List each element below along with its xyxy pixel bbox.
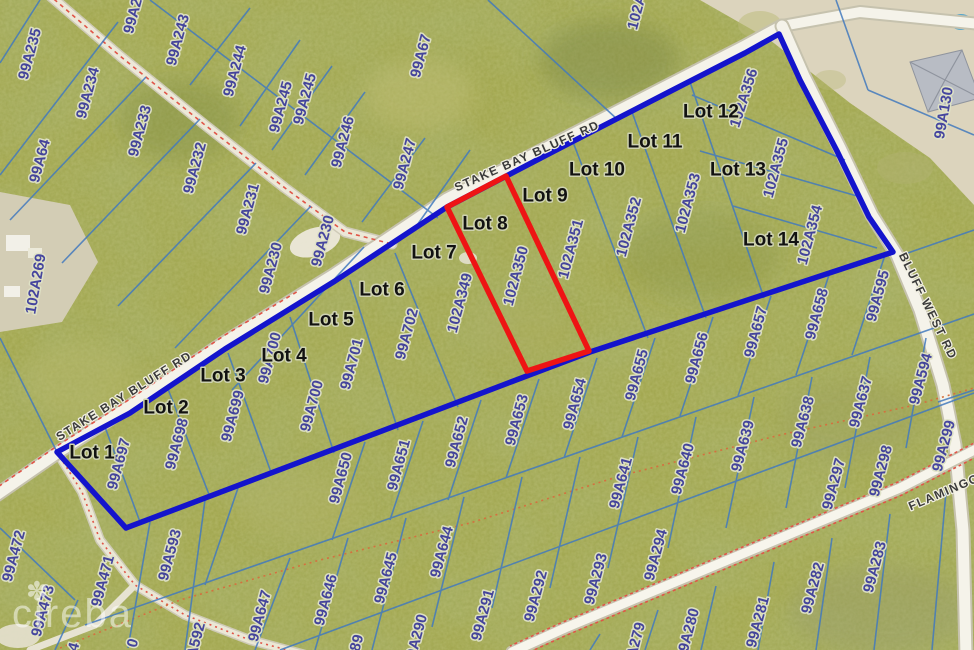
lot-label: Lot 3 (200, 366, 245, 387)
lot-label: Lot 13 (710, 160, 766, 181)
lot-label: Lot 8 (462, 214, 507, 235)
lot-label: Lot 7 (411, 243, 456, 264)
vegetation-texture (0, 0, 974, 650)
lot-label: Lot 9 (522, 186, 567, 207)
lot-label: Lot 6 (359, 280, 404, 301)
lot-label: Lot 10 (569, 160, 625, 181)
lot-label: Lot 5 (308, 310, 354, 331)
lot-label: Lot 12 (683, 102, 739, 123)
lot-label: Lot 1 (69, 443, 115, 464)
map-canvas[interactable]: 99A23599A299A24399A24499A24599A24599A234… (0, 0, 974, 650)
lot-label: Lot 2 (143, 398, 188, 419)
flower-icon: ✽ (26, 578, 50, 604)
watermark: ✽ cireba (12, 594, 133, 634)
lot-label: Lot 11 (628, 132, 683, 153)
lot-label: Lot 4 (261, 346, 307, 367)
lot-label: Lot 14 (743, 230, 799, 251)
map-image: 99A23599A299A24399A24499A24599A24599A234… (0, 0, 974, 650)
